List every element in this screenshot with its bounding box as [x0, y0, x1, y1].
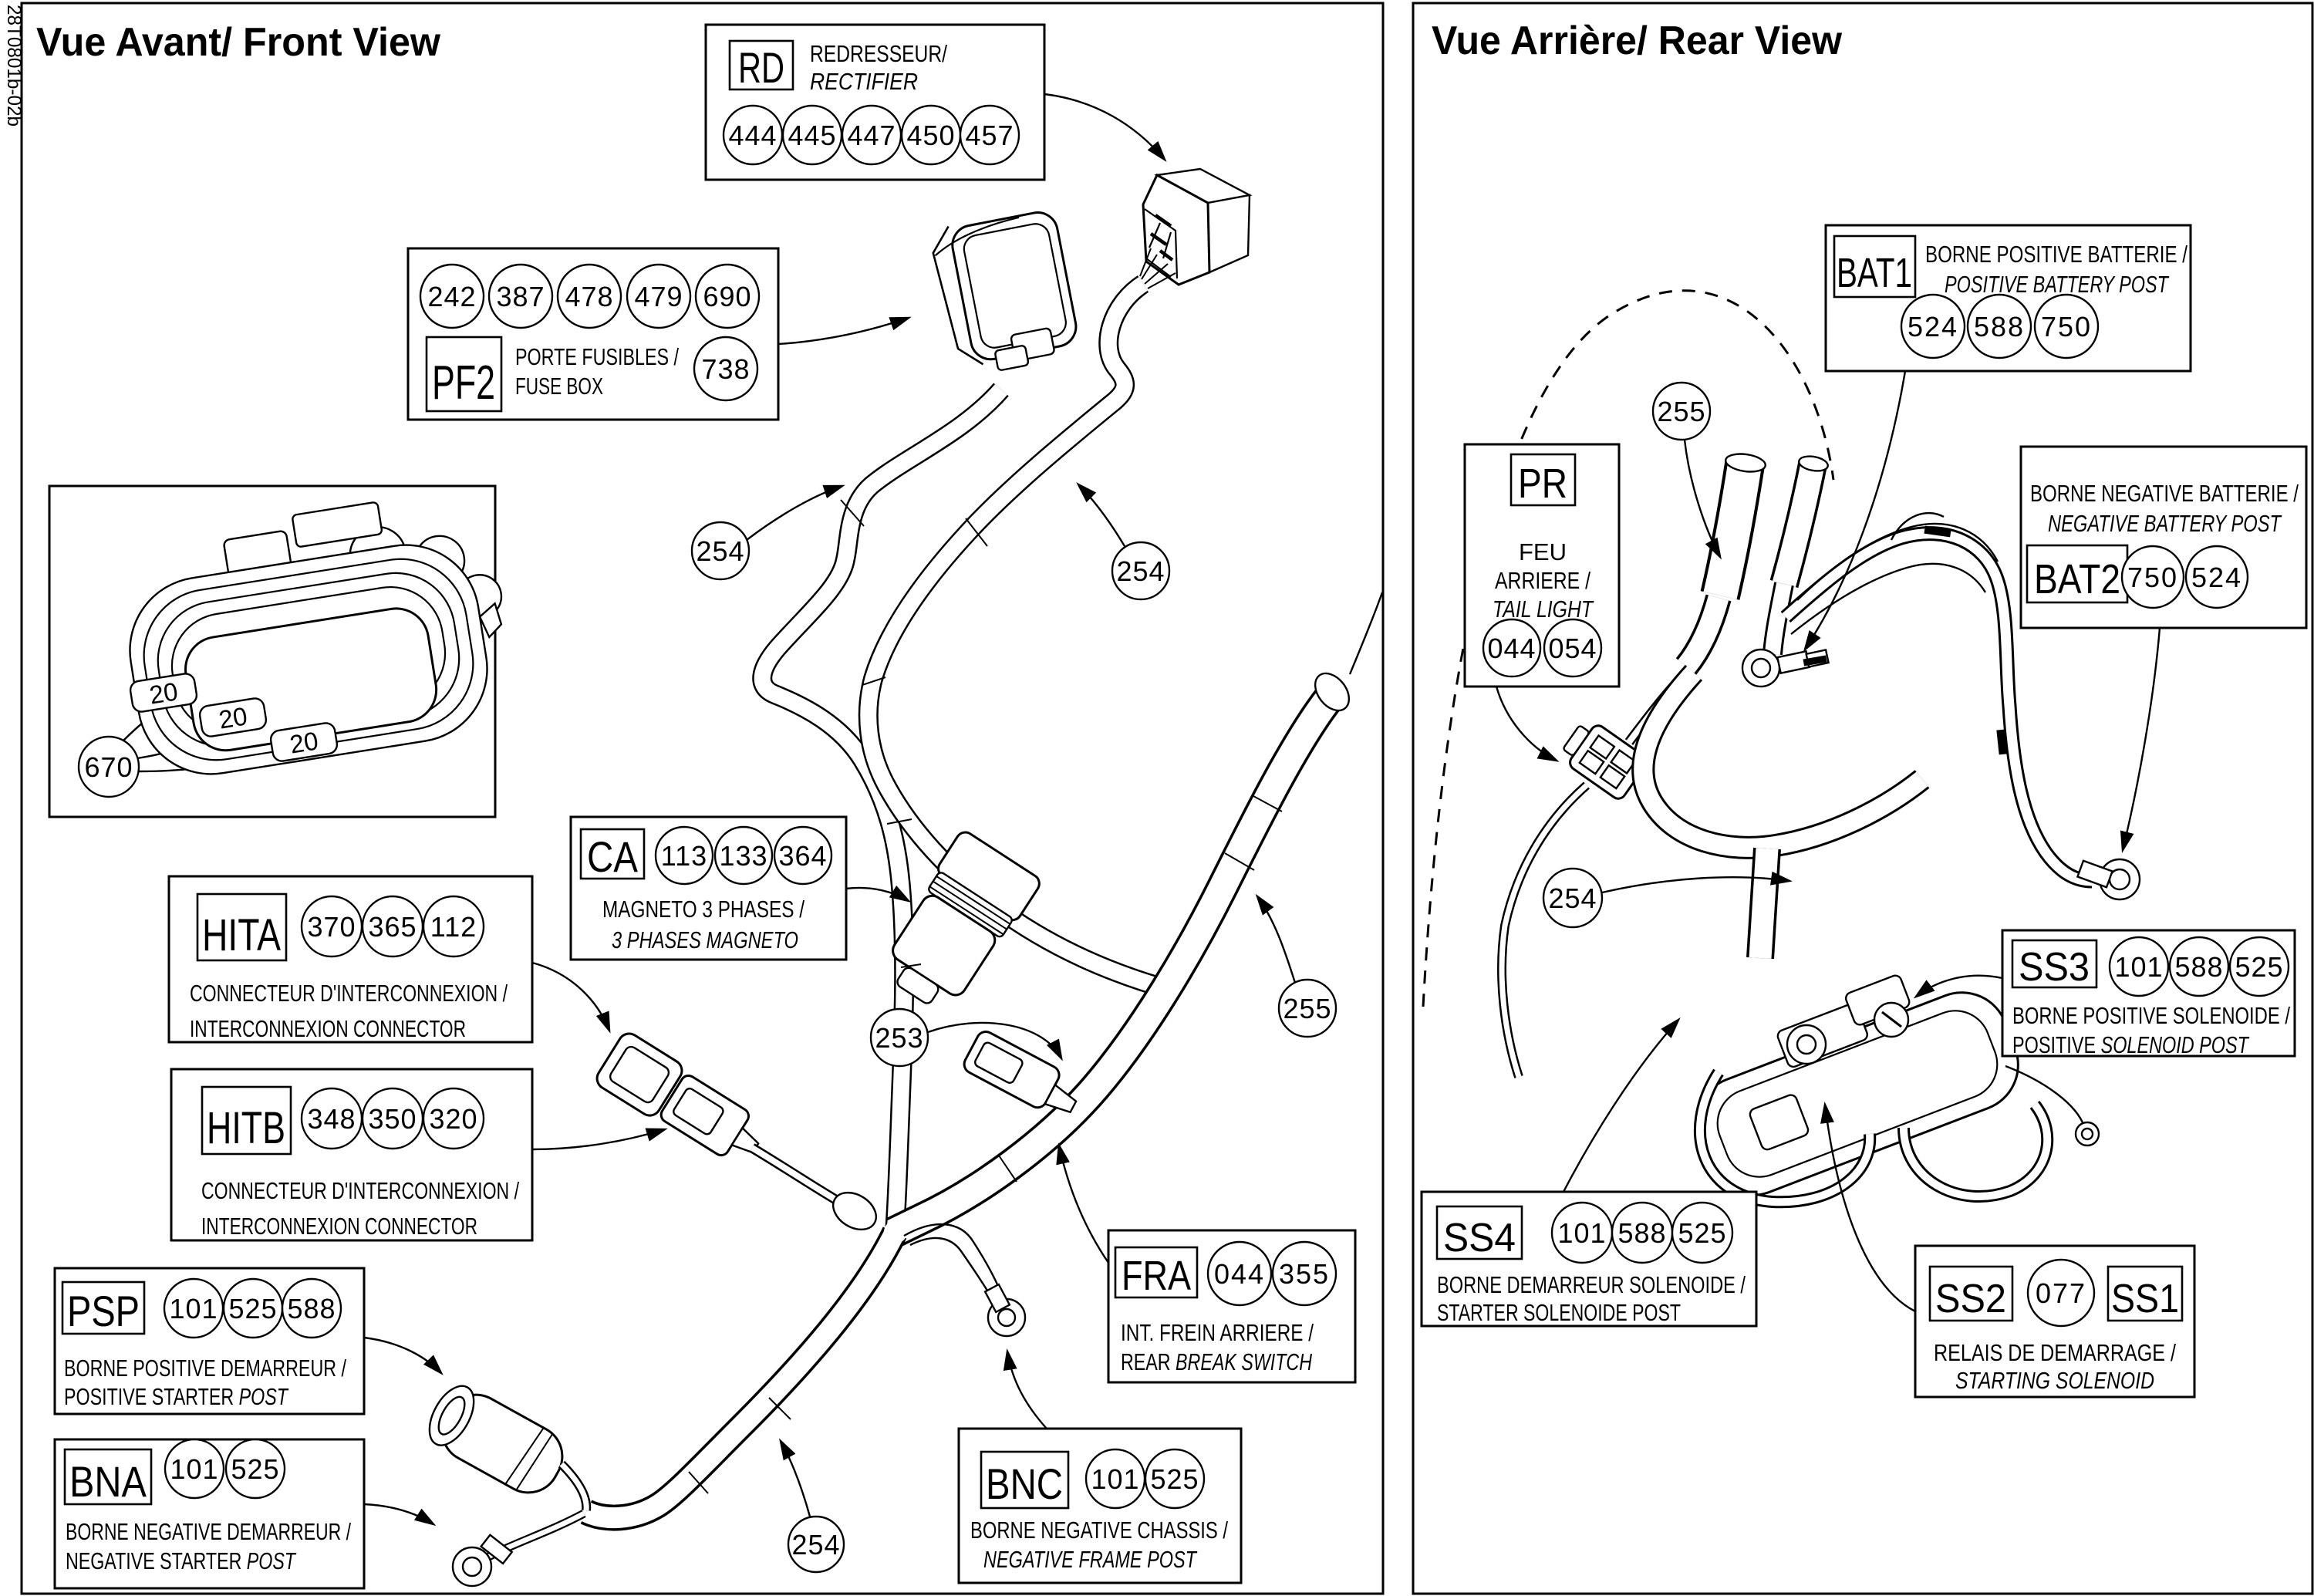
svg-text:365: 365: [368, 911, 417, 943]
svg-text:REAR BREAK SWITCH: REAR BREAK SWITCH: [1121, 1348, 1312, 1375]
svg-text:NEGATIVE FRAME POST: NEGATIVE FRAME POST: [983, 1546, 1198, 1573]
svg-text:CA: CA: [587, 832, 639, 881]
svg-text:28T0801b-02b: 28T0801b-02b: [3, 5, 25, 127]
svg-text:457: 457: [965, 120, 1014, 151]
svg-text:364: 364: [778, 840, 827, 872]
svg-text:BORNE NEGATIVE CHASSIS /: BORNE NEGATIVE CHASSIS /: [970, 1517, 1228, 1544]
svg-text:355: 355: [1279, 1258, 1330, 1290]
svg-text:BORNE NEGATIVE BATTERIE /: BORNE NEGATIVE BATTERIE /: [2030, 480, 2299, 507]
svg-text:670: 670: [84, 751, 133, 783]
svg-text:CONNECTEUR D'INTERCONNEXION /: CONNECTEUR D'INTERCONNEXION /: [190, 980, 508, 1007]
svg-text:255: 255: [1657, 396, 1705, 427]
svg-text:PF2: PF2: [432, 356, 495, 410]
svg-text:STARTING SOLENOID: STARTING SOLENOID: [1955, 1367, 2154, 1394]
svg-text:254: 254: [1116, 555, 1165, 587]
svg-text:077: 077: [2036, 1277, 2086, 1309]
svg-text:NEGATIVE STARTER POST: NEGATIVE STARTER POST: [66, 1547, 297, 1574]
svg-text:479: 479: [634, 281, 683, 312]
svg-text:PR: PR: [1518, 461, 1567, 507]
svg-text:BORNE POSITIVE DEMARREUR /: BORNE POSITIVE DEMARREUR /: [64, 1355, 346, 1382]
svg-text:588: 588: [287, 1293, 336, 1324]
svg-text:370: 370: [307, 911, 356, 943]
svg-text:254: 254: [1548, 882, 1597, 914]
svg-text:20: 20: [217, 701, 249, 734]
svg-text:FEU: FEU: [1519, 538, 1567, 565]
svg-text:348: 348: [307, 1103, 356, 1135]
svg-text:254: 254: [696, 535, 744, 567]
svg-text:112: 112: [430, 911, 477, 943]
svg-text:444: 444: [728, 120, 777, 151]
svg-text:INTERCONNEXION CONNECTOR: INTERCONNEXION CONNECTOR: [190, 1015, 466, 1042]
svg-text:RD: RD: [738, 43, 784, 92]
svg-text:450: 450: [906, 120, 955, 151]
svg-text:BAT1: BAT1: [1837, 250, 1912, 296]
svg-text:101: 101: [169, 1293, 218, 1324]
svg-text:750: 750: [2041, 311, 2092, 342]
svg-text:NEGATIVE BATTERY POST: NEGATIVE BATTERY POST: [2048, 510, 2282, 537]
svg-text:RELAIS DE DEMARRAGE /: RELAIS DE DEMARRAGE /: [1934, 1339, 2176, 1366]
svg-text:BORNE NEGATIVE DEMARREUR /: BORNE NEGATIVE DEMARREUR /: [66, 1518, 351, 1545]
svg-text:TAIL LIGHT: TAIL LIGHT: [1493, 596, 1594, 623]
svg-text:255: 255: [1283, 993, 1331, 1024]
svg-text:738: 738: [701, 353, 750, 385]
svg-text:SS2: SS2: [1935, 1277, 2006, 1321]
svg-text:BORNE DEMARREUR SOLENOIDE /: BORNE DEMARREUR SOLENOIDE /: [1437, 1271, 1746, 1298]
svg-text:054: 054: [1548, 633, 1597, 664]
svg-text:RECTIFIER: RECTIFIER: [810, 68, 918, 95]
svg-text:HITB: HITB: [207, 1103, 285, 1153]
svg-text:387: 387: [496, 281, 545, 312]
svg-text:POSITIVE STARTER POST: POSITIVE STARTER POST: [64, 1383, 289, 1410]
svg-text:BNC: BNC: [986, 1459, 1063, 1508]
svg-text:INT. FREIN ARRIERE /: INT. FREIN ARRIERE /: [1121, 1319, 1314, 1346]
svg-text:525: 525: [1678, 1217, 1726, 1249]
svg-text:Vue Avant/ Front View: Vue Avant/ Front View: [36, 20, 441, 65]
svg-text:254: 254: [791, 1529, 840, 1561]
svg-text:20: 20: [288, 726, 320, 758]
svg-text:FUSE BOX: FUSE BOX: [515, 373, 603, 400]
svg-text:20: 20: [147, 677, 180, 709]
svg-text:445: 445: [788, 120, 836, 151]
svg-text:HITA: HITA: [202, 910, 281, 960]
svg-text:SS3: SS3: [2019, 945, 2090, 990]
svg-text:525: 525: [231, 1453, 279, 1485]
svg-text:447: 447: [847, 120, 896, 151]
svg-text:044: 044: [1487, 633, 1536, 664]
svg-text:101: 101: [1557, 1217, 1606, 1249]
svg-text:BORNE POSITIVE BATTERIE /: BORNE POSITIVE BATTERIE /: [1925, 241, 2188, 268]
svg-text:SS4: SS4: [1443, 1216, 1516, 1260]
svg-text:588: 588: [1617, 1217, 1666, 1249]
svg-text:PORTE FUSIBLES /: PORTE FUSIBLES /: [515, 343, 679, 370]
svg-text:044: 044: [1214, 1258, 1265, 1290]
svg-text:113: 113: [661, 840, 707, 872]
svg-text:242: 242: [427, 281, 476, 312]
svg-text:PSP: PSP: [67, 1287, 140, 1335]
svg-text:253: 253: [875, 1022, 923, 1054]
svg-text:525: 525: [2235, 951, 2283, 983]
svg-text:588: 588: [2174, 951, 2223, 983]
svg-text:750: 750: [2127, 562, 2178, 593]
svg-text:Vue Arrière/ Rear View: Vue Arrière/ Rear View: [1432, 19, 1843, 63]
svg-text:POSITIVE SOLENOID POST: POSITIVE SOLENOID POST: [2012, 1031, 2250, 1058]
svg-text:101: 101: [170, 1453, 218, 1485]
svg-text:525: 525: [228, 1293, 277, 1324]
svg-text:3 PHASES MAGNETO: 3 PHASES MAGNETO: [612, 926, 798, 953]
svg-text:CONNECTEUR D'INTERCONNEXION /: CONNECTEUR D'INTERCONNEXION /: [201, 1177, 519, 1204]
svg-text:STARTER SOLENOIDE POST: STARTER SOLENOIDE POST: [1437, 1299, 1681, 1326]
svg-text:MAGNETO 3 PHASES /: MAGNETO 3 PHASES /: [602, 896, 805, 923]
svg-text:101: 101: [2114, 951, 2163, 983]
svg-text:588: 588: [1974, 311, 2025, 342]
svg-text:FRA: FRA: [1122, 1253, 1191, 1299]
svg-text:320: 320: [429, 1103, 477, 1135]
svg-text:SS1: SS1: [2111, 1277, 2179, 1321]
svg-text:133: 133: [719, 840, 767, 872]
svg-text:350: 350: [368, 1103, 417, 1135]
svg-text:478: 478: [565, 281, 613, 312]
svg-text:101: 101: [1091, 1463, 1139, 1495]
svg-text:690: 690: [703, 281, 751, 312]
svg-text:BORNE POSITIVE SOLENOIDE /: BORNE POSITIVE SOLENOIDE /: [2012, 1002, 2290, 1029]
svg-text:524: 524: [1908, 311, 1958, 342]
svg-text:BAT2: BAT2: [2034, 556, 2120, 602]
svg-text:POSITIVE BATTERY POST: POSITIVE BATTERY POST: [1945, 271, 2170, 298]
svg-text:524: 524: [2191, 562, 2242, 593]
svg-text:ARRIERE /: ARRIERE /: [1495, 567, 1590, 594]
svg-text:BNA: BNA: [69, 1457, 147, 1506]
svg-text:INTERCONNEXION CONNECTOR: INTERCONNEXION CONNECTOR: [201, 1213, 477, 1240]
svg-text:REDRESSEUR/: REDRESSEUR/: [810, 40, 947, 67]
svg-text:525: 525: [1150, 1463, 1199, 1495]
